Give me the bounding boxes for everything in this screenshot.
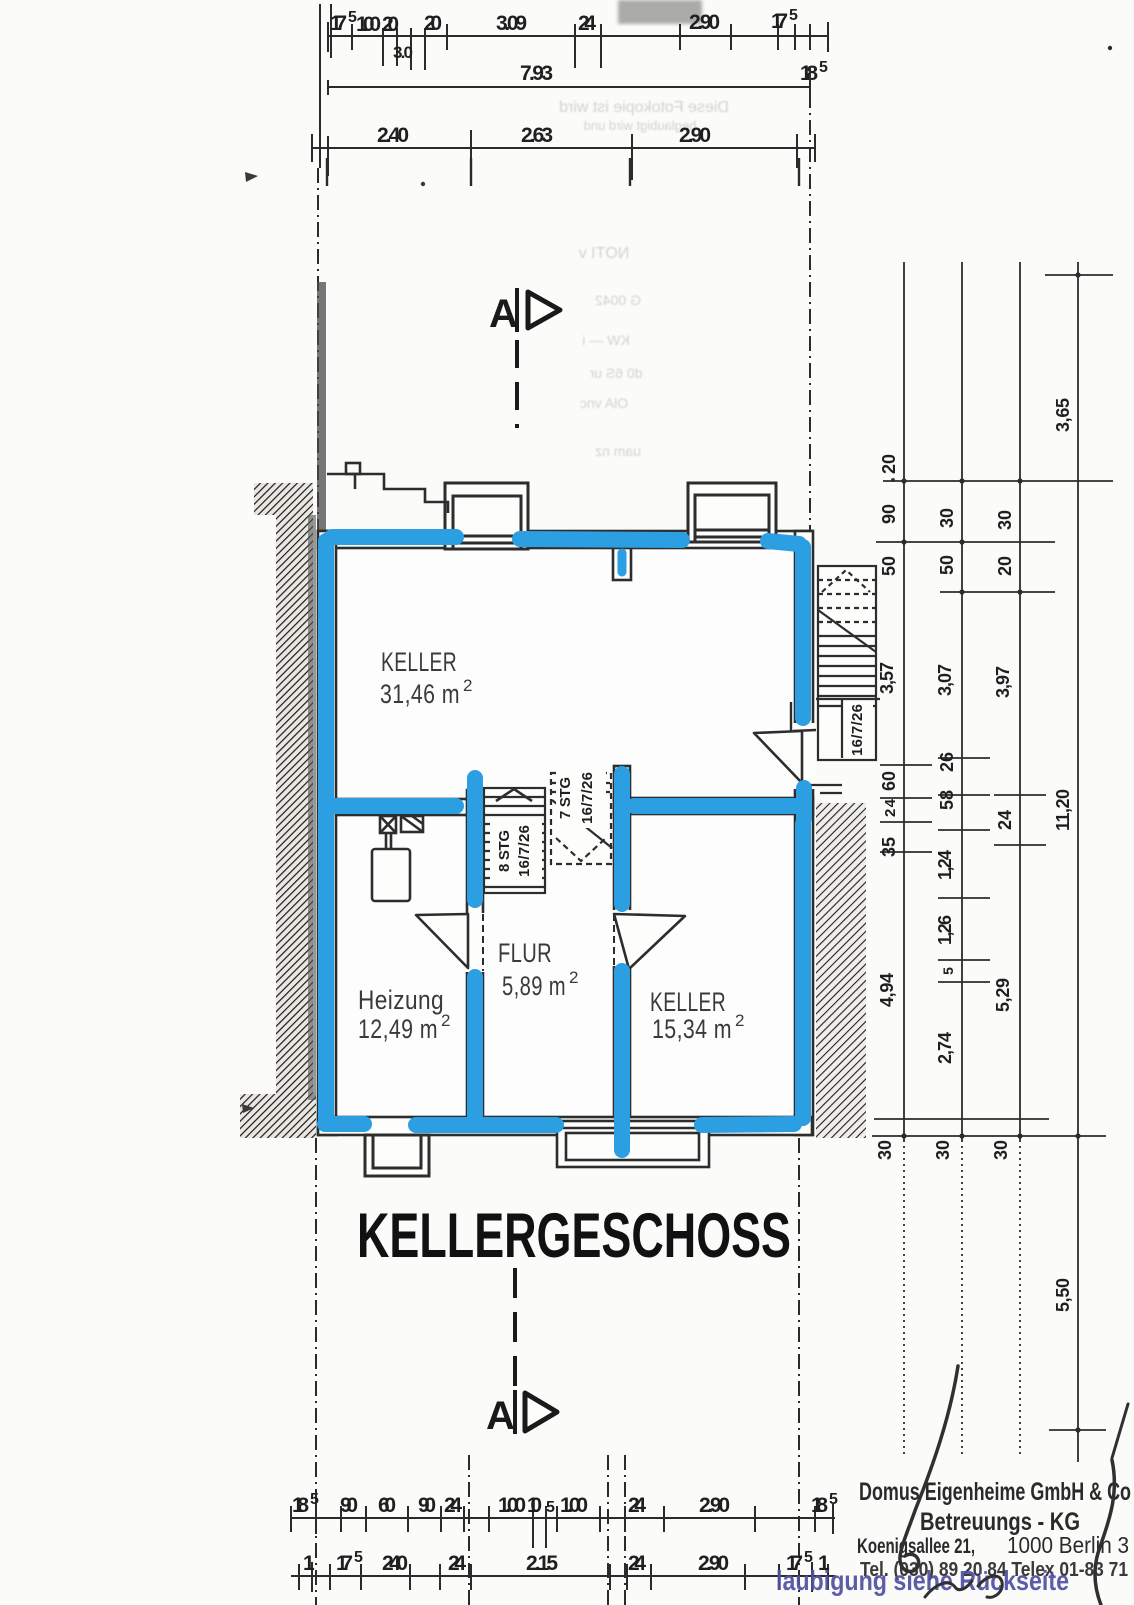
svg-text:24: 24 [444,1494,462,1517]
svg-text:3,65: 3,65 [1053,398,1073,432]
svg-text:5,50: 5,50 [1053,1278,1073,1312]
svg-text:24: 24 [882,798,899,817]
svg-text:1.00: 1.00 [560,1494,588,1517]
svg-text:1.00: 1.00 [498,1494,526,1517]
svg-text:KW — i: KW — i [582,332,629,348]
svg-text:G 0042: G 0042 [595,292,641,308]
svg-text:24: 24 [628,1552,646,1575]
svg-text:60: 60 [378,1494,396,1517]
svg-text:A: A [486,1394,515,1438]
svg-text:2: 2 [463,676,473,695]
svg-text:5: 5 [804,1549,813,1566]
svg-text:FLUR: FLUR [498,938,552,968]
svg-text:50: 50 [879,556,899,576]
svg-text:7.93: 7.93 [520,62,553,85]
svg-text:2.90: 2.90 [689,11,720,34]
svg-text:3.0: 3.0 [393,43,413,62]
svg-text:20: 20 [879,454,899,474]
svg-text:30: 30 [933,1140,953,1160]
svg-text:24: 24 [628,1494,646,1517]
svg-text:5: 5 [546,1499,555,1516]
svg-text:5: 5 [354,1549,363,1566]
svg-text:d0 6S ur: d0 6S ur [589,365,642,381]
svg-text:16/7/26: 16/7/26 [516,825,533,877]
svg-text:laubigung siehe Rückseite: laubigung siehe Rückseite [776,1565,1069,1596]
svg-text:3,97: 3,97 [993,666,1013,698]
svg-text:5,29: 5,29 [993,978,1013,1012]
svg-text:17: 17 [336,1552,353,1575]
svg-text:5: 5 [789,7,798,24]
svg-text:30: 30 [995,510,1015,530]
svg-text:7 STG: 7 STG [557,777,574,819]
svg-text:2: 2 [735,1011,745,1030]
svg-text:15,34 m: 15,34 m [652,1014,732,1044]
svg-text:10: 10 [527,1494,542,1517]
svg-text:30: 30 [991,1140,1011,1160]
svg-text:2.15: 2.15 [526,1552,558,1575]
svg-text:58: 58 [937,790,957,810]
svg-text:90: 90 [879,504,899,524]
svg-text:26: 26 [937,752,957,772]
svg-text:5: 5 [819,59,828,76]
svg-text:KELLER: KELLER [650,987,726,1017]
svg-text:12,49 m: 12,49 m [358,1014,438,1044]
svg-text:1: 1 [303,1552,315,1575]
svg-text:Heizung: Heizung [358,985,444,1015]
svg-text:2: 2 [569,968,579,987]
svg-text:3.09: 3.09 [496,12,527,35]
svg-text:50: 50 [937,555,957,575]
svg-text:18: 18 [811,1494,828,1517]
svg-text:20: 20 [995,556,1015,576]
svg-text:A: A [489,292,518,336]
svg-text:5: 5 [829,1491,838,1508]
svg-text:16/7/26: 16/7/26 [579,772,596,824]
svg-text:5: 5 [310,1491,319,1508]
svg-text:Domus Eigenheime GmbH & Co: Domus Eigenheime GmbH & Co [859,1478,1131,1506]
svg-text:240: 240 [382,1552,408,1575]
svg-text:20: 20 [382,13,399,36]
svg-text:NOTI v: NOTI v [579,245,630,262]
svg-text:uam nz: uam nz [595,443,641,459]
svg-text:24: 24 [578,12,596,35]
svg-text:90: 90 [418,1494,436,1517]
svg-text:24: 24 [448,1552,466,1575]
svg-text:OlA vnc: OlA vnc [580,395,628,411]
svg-text:31,46 m: 31,46 m [380,679,460,709]
svg-text:2.90: 2.90 [699,1494,730,1517]
svg-text:4,94: 4,94 [877,973,897,1007]
svg-text:2.90: 2.90 [698,1552,729,1575]
svg-text:2.63: 2.63 [521,124,553,147]
svg-text:90: 90 [340,1494,358,1517]
svg-text:1,26: 1,26 [935,915,955,945]
svg-text:3,07: 3,07 [935,664,955,696]
svg-text:2,74: 2,74 [935,1032,955,1064]
svg-text:17: 17 [771,10,788,33]
svg-text:24: 24 [995,810,1015,830]
svg-text:18: 18 [292,1494,309,1517]
svg-text:5,89 m: 5,89 m [502,971,566,1001]
svg-text:2: 2 [441,1011,451,1030]
svg-text:2.40: 2.40 [377,124,409,147]
svg-text:1000 Berlin 3: 1000 Berlin 3 [1007,1532,1129,1558]
svg-text:1,24: 1,24 [935,850,955,880]
svg-text:35: 35 [879,837,899,857]
svg-text:20: 20 [424,12,442,35]
svg-text:16/7/26: 16/7/26 [849,704,866,756]
svg-text:2.90: 2.90 [679,124,711,147]
svg-text:5: 5 [940,967,956,975]
svg-text:1.00: 1.00 [356,13,381,36]
svg-text:KELLERGESCHOSS: KELLERGESCHOSS [357,1201,791,1271]
svg-text:8 STG: 8 STG [496,830,513,872]
svg-text:60: 60 [879,771,899,791]
svg-text:30: 30 [937,508,957,528]
svg-text:11,20: 11,20 [1053,789,1073,831]
svg-text:30: 30 [875,1140,895,1160]
svg-text:KELLER: KELLER [381,647,457,677]
svg-text:3,57: 3,57 [877,662,897,694]
svg-text:Diese Fotokopie ist wird: Diese Fotokopie ist wird [559,99,729,116]
svg-text:17: 17 [330,12,347,35]
